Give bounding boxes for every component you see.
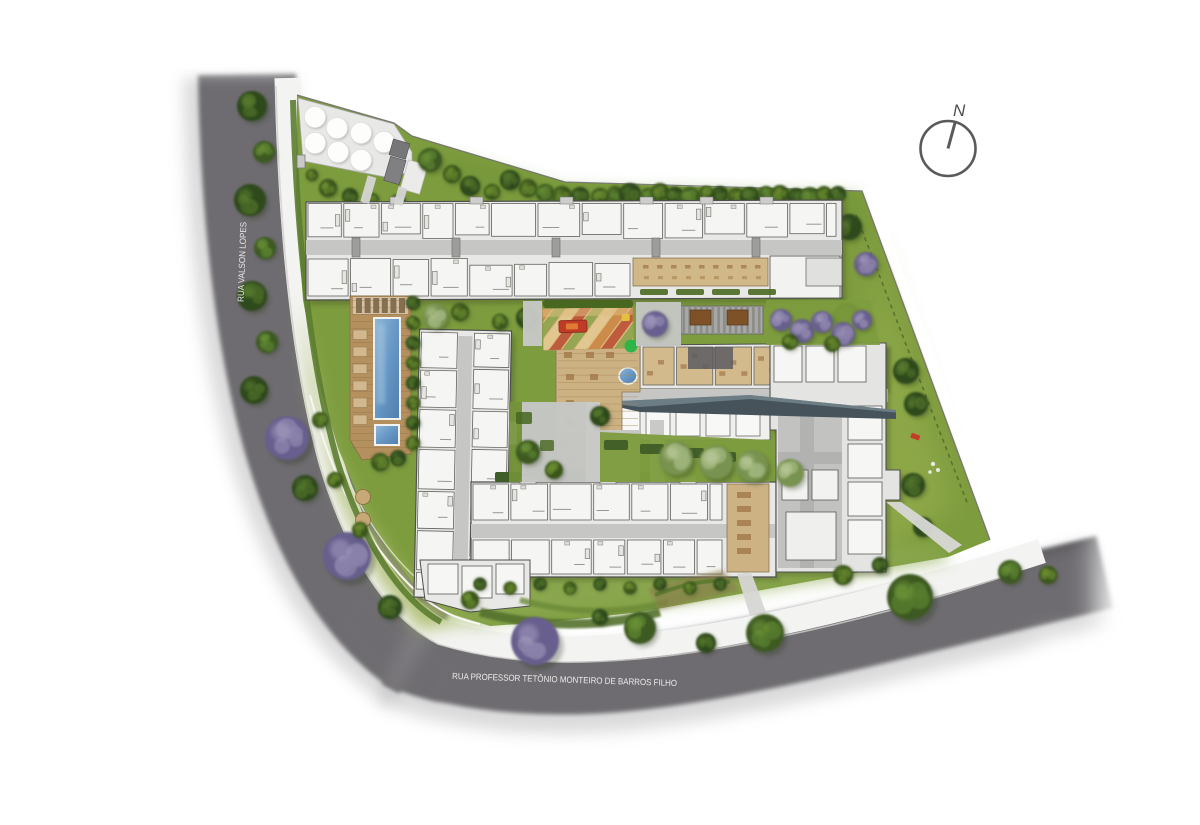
svg-text:N: N <box>953 101 966 120</box>
